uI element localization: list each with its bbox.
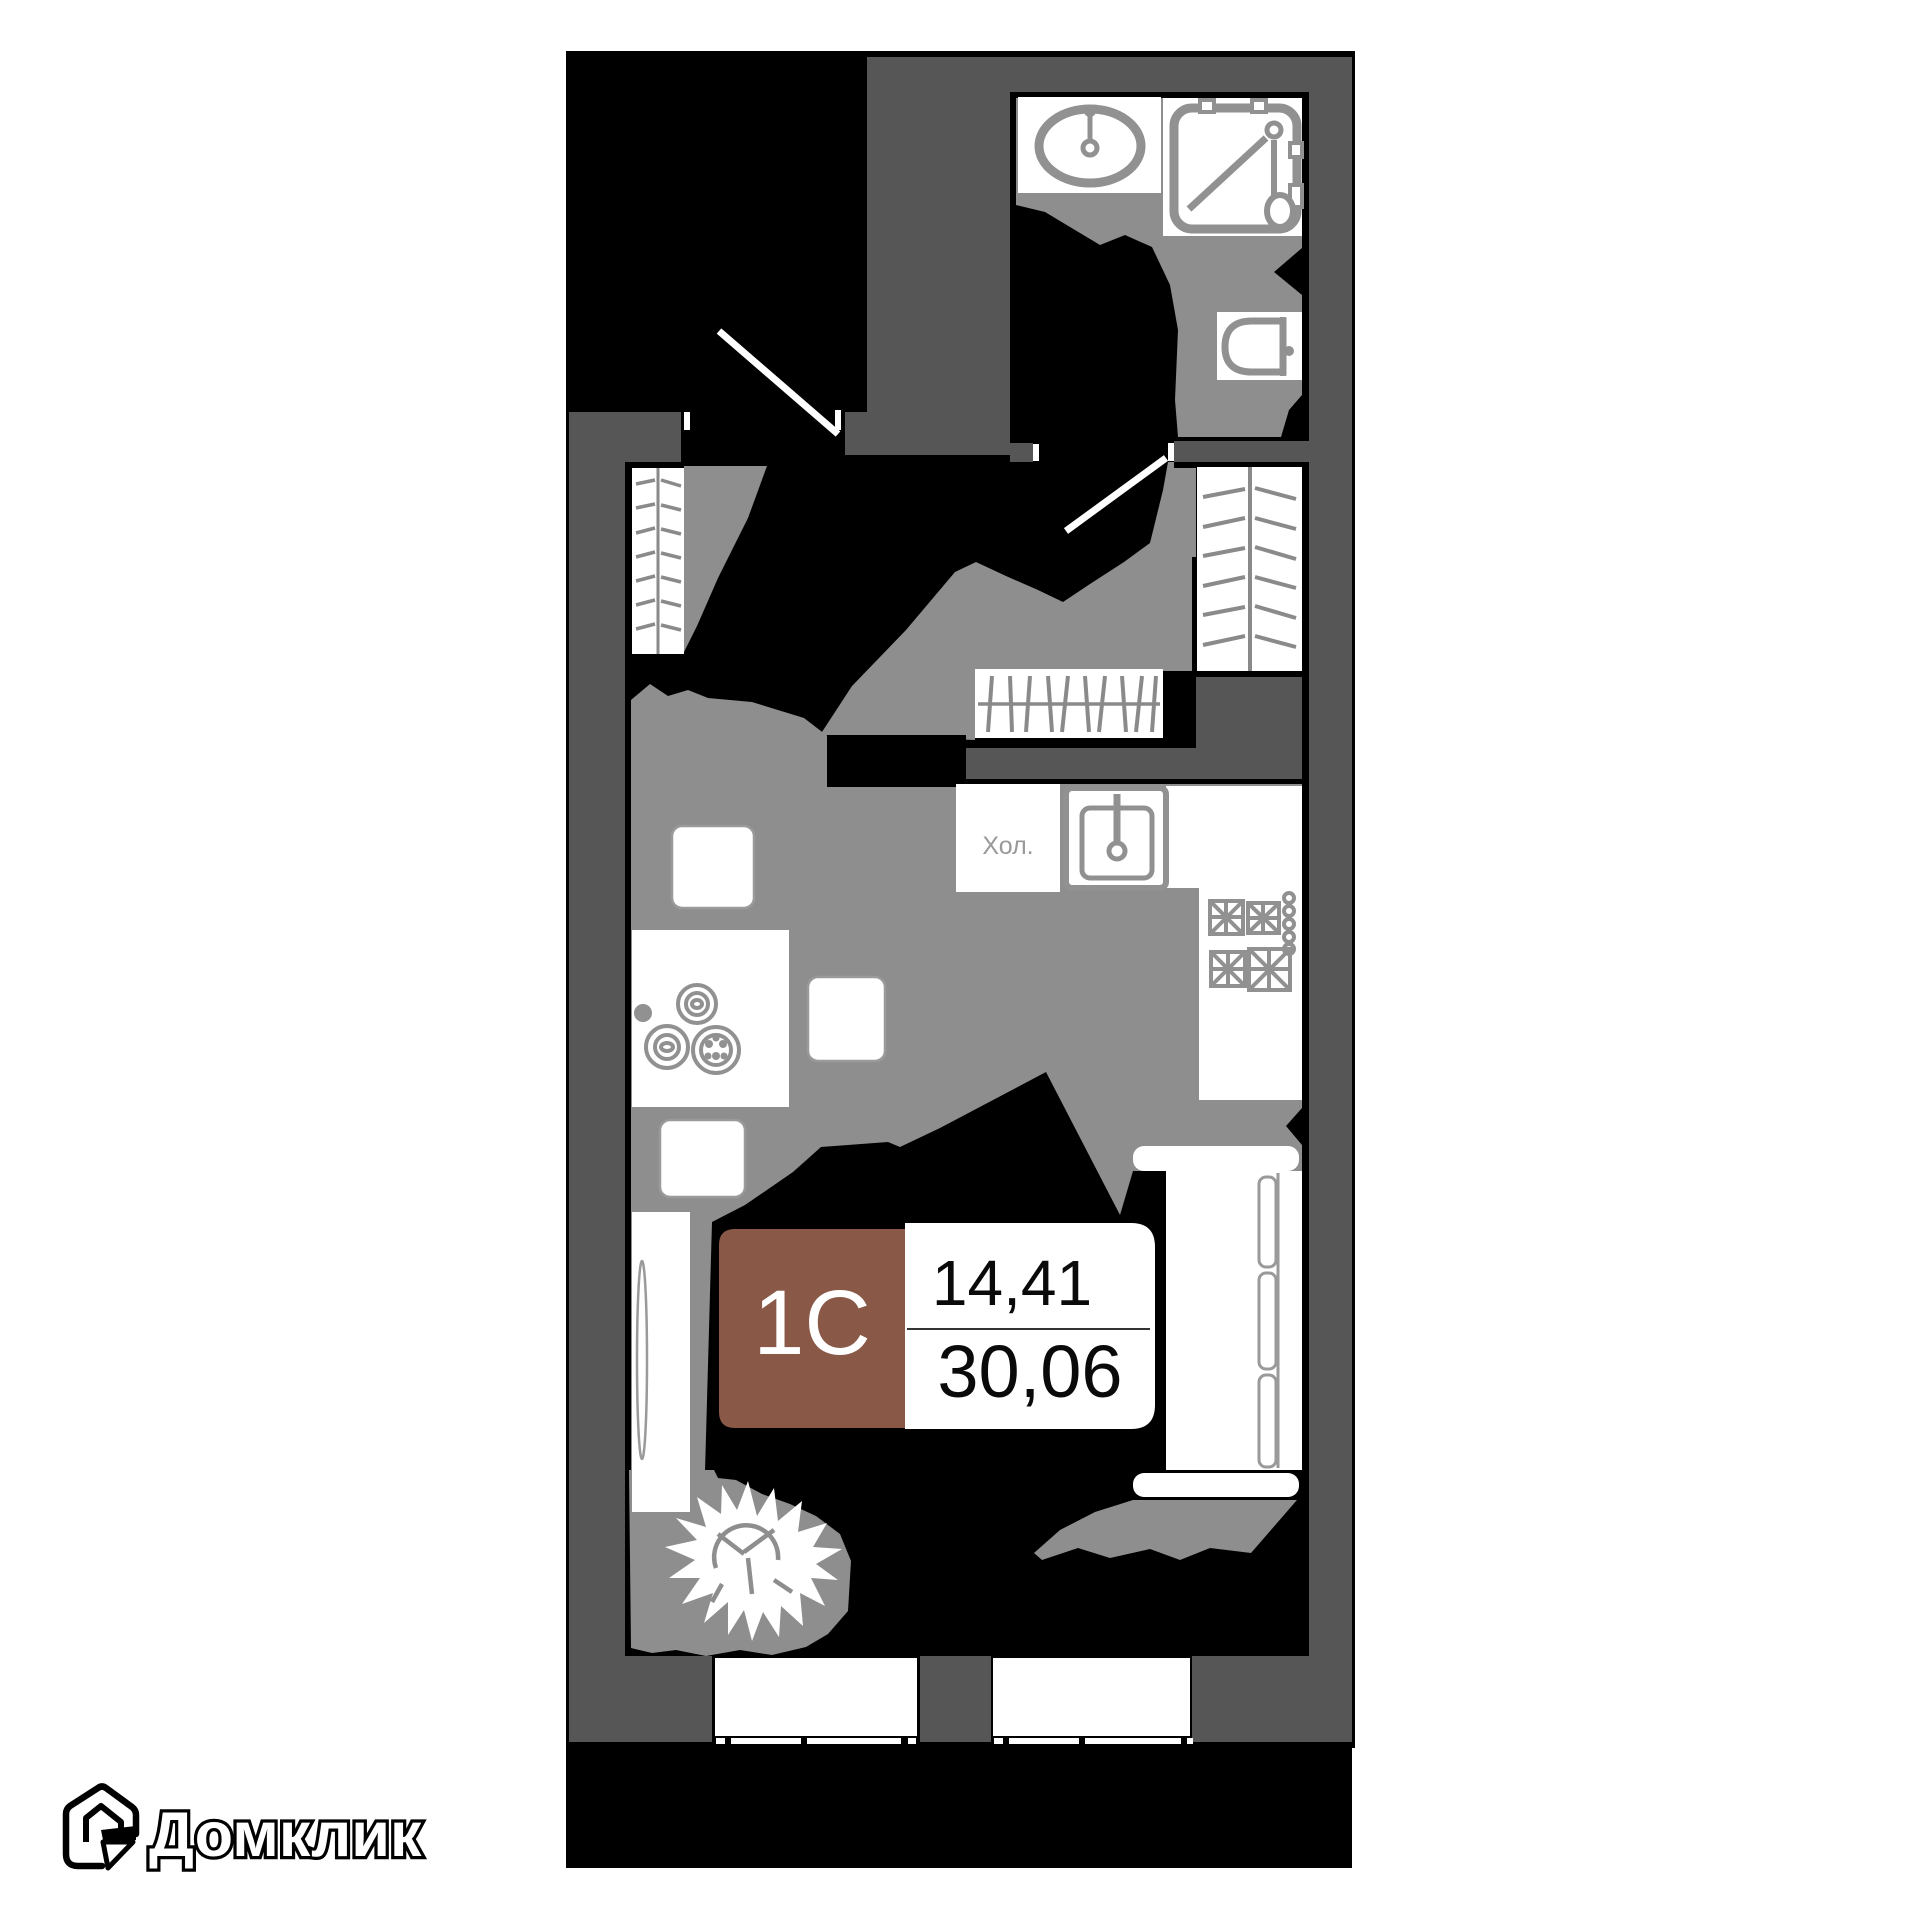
svg-text:Хол.: Хол.: [982, 832, 1033, 860]
svg-text:14,41: 14,41: [932, 1247, 1092, 1319]
svg-text:30,06: 30,06: [937, 1330, 1122, 1413]
svg-text:1С: 1С: [753, 1272, 871, 1374]
svg-text:Домклик: Домклик: [149, 1800, 422, 1870]
